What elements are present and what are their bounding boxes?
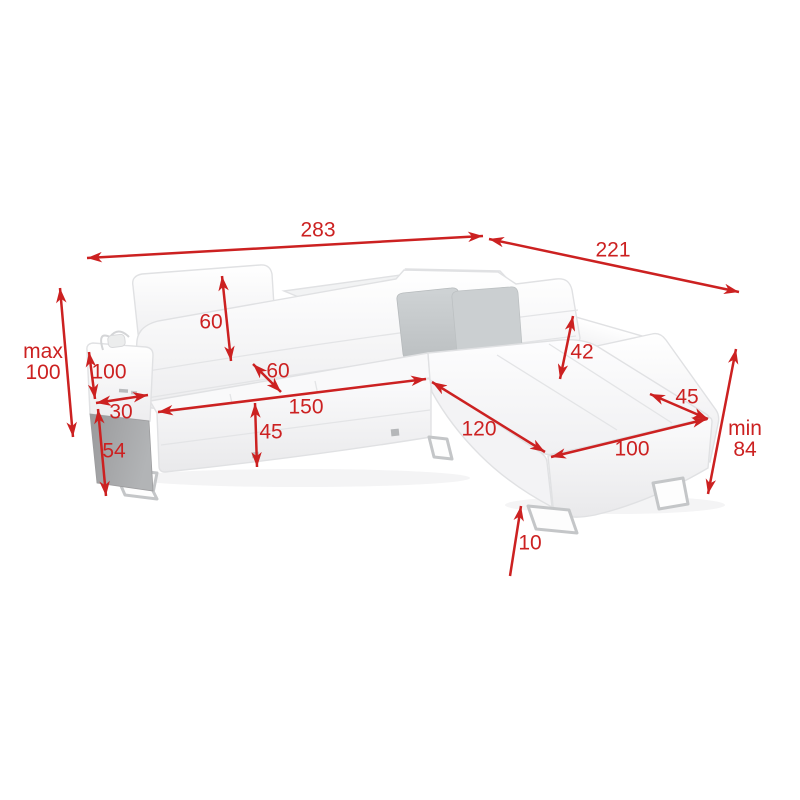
dimension-line-total-width [87,236,483,258]
dimension-label-armrest-width: 30 [109,401,132,424]
dimension-label-chaise-width: 100 [614,438,649,461]
dimension-label-seat-height: 45 [259,421,282,444]
dimension-label-seat-width: 150 [288,396,323,419]
sofa-dimension-diagram: 283221max10010030546060150454245120100mi… [0,0,800,800]
dimension-label-leg-height: 10 [518,532,541,555]
dimension-label-chaise-length: 120 [461,418,496,441]
dimension-label-height-max: 100 [25,361,60,384]
sofa-leg [653,478,688,509]
dimension-height-max: max100 [23,288,73,437]
drawer-tab [391,429,400,437]
dimension-label-headrest-height: 42 [570,341,593,364]
dimension-label-height-min: 84 [733,438,757,461]
sofa-illustration [87,265,725,533]
shelf-socket [119,389,128,393]
dimension-label-total-width: 283 [300,219,335,242]
floor-shadow [130,469,470,487]
dimension-total-width: 283 [87,219,483,259]
dimension-label-height-min: min [728,417,762,440]
dimension-label-side-panel-height: 54 [102,440,126,463]
dimension-label-total-depth: 221 [595,239,630,262]
shelf-socket [131,391,137,395]
dimension-label-backrest-height: 60 [199,311,222,334]
diagram-canvas: 283221max10010030546060150454245120100mi… [0,0,800,800]
sofa-leg [528,506,577,533]
dimension-label-seat-depth: 60 [266,360,289,383]
lamp-head [107,334,125,348]
dimension-label-right-armrest-width: 45 [675,386,698,409]
sofa-leg [429,437,452,459]
dimension-label-height-max: max [23,340,63,363]
dimension-label-armrest-height: 100 [91,361,126,384]
